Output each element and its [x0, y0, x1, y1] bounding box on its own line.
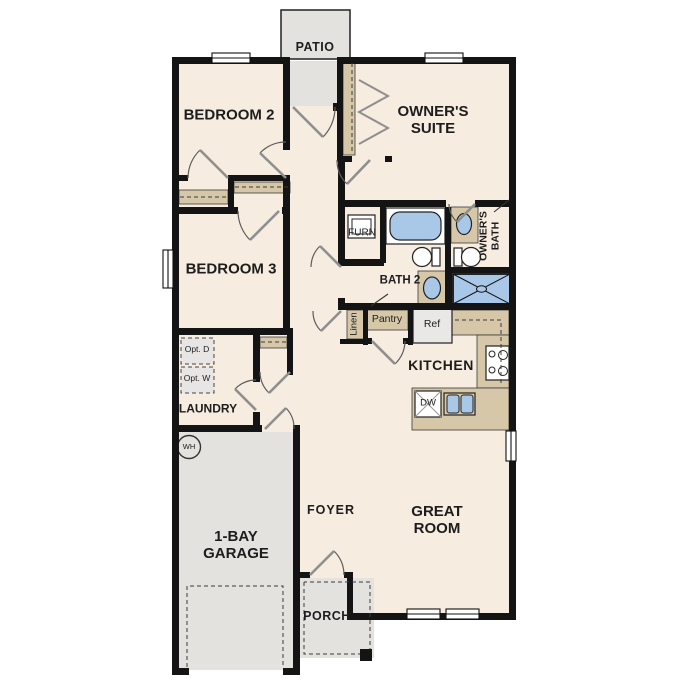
great-room-label: GREAT ROOM	[401, 504, 473, 538]
floor-plan-drawing	[0, 0, 687, 687]
bedroom2-label: BEDROOM 2	[184, 108, 275, 125]
porch-column	[360, 649, 372, 661]
patio-label: PATIO	[296, 40, 335, 54]
bedroom2-window	[212, 53, 250, 63]
owners-toilet-tank	[454, 248, 462, 266]
foyer-label: FOYER	[307, 503, 355, 517]
bedroom3-window	[163, 250, 173, 288]
kitchen-sink	[444, 393, 475, 415]
owners-suite-window	[425, 53, 463, 63]
owners-suite-label: OWNER'S SUITE	[385, 104, 481, 138]
bath2-sink	[424, 277, 441, 299]
bedroom3-label: BEDROOM 3	[186, 262, 277, 279]
porch-label: PORCH	[303, 609, 351, 623]
garage-label: 1-BAY GARAGE	[191, 529, 281, 563]
kitchen-label: KITCHEN	[408, 358, 474, 374]
laundry-label: LAUNDRY	[179, 402, 237, 415]
owners-shower	[453, 274, 510, 304]
bath2-toilet-tank	[432, 248, 440, 266]
bathtub	[390, 212, 441, 240]
refrigerator-label: Ref	[424, 319, 440, 331]
furnace-label: FURN	[348, 227, 376, 238]
great-room-side-window	[506, 431, 516, 461]
patio-recess	[287, 61, 337, 106]
great-room-window-1	[407, 609, 440, 619]
pantry-label: Pantry	[372, 314, 402, 326]
kitchen-counter-top	[452, 310, 509, 335]
optional-dryer-label: Opt. D	[182, 345, 212, 355]
dishwasher-label: DW	[420, 399, 436, 410]
optional-washer-label: Opt. W	[182, 374, 212, 384]
bath2-label: BATH 2	[377, 275, 423, 288]
bath2-toilet	[413, 248, 432, 267]
stove	[486, 346, 509, 380]
owners-bath-label: OWNER'S BATH	[478, 197, 502, 275]
water-heater-label: WH	[183, 443, 196, 451]
owners-closet-shelf	[343, 63, 355, 155]
great-room-window-2	[446, 609, 479, 619]
linen-label: Linen	[350, 312, 361, 335]
floor-plan: PATIO BEDROOM 2 OWNER'S SUITE OWNER'S BA…	[0, 0, 687, 687]
